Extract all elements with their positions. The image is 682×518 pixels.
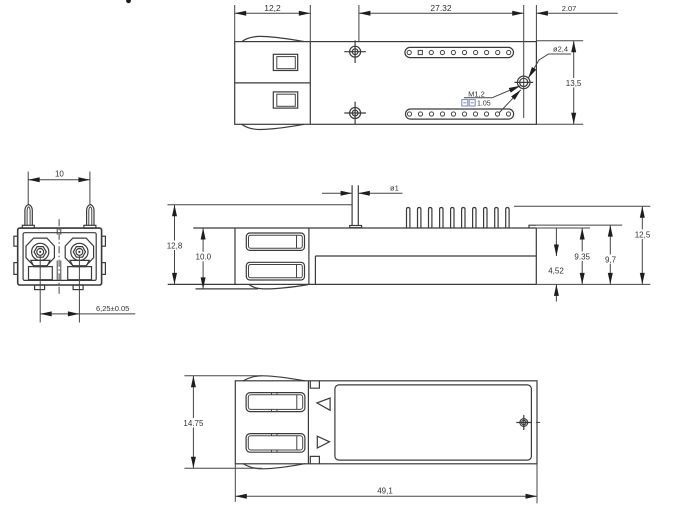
svg-text:ø1: ø1 <box>390 183 399 192</box>
svg-text:2.07: 2.07 <box>562 4 577 13</box>
svg-text:10: 10 <box>55 170 64 179</box>
svg-text:12,5: 12,5 <box>635 230 651 239</box>
svg-text:49,1: 49,1 <box>377 487 393 496</box>
svg-text:M1,2: M1,2 <box>468 89 485 98</box>
svg-text:13,5: 13,5 <box>566 79 582 88</box>
svg-text:27.32: 27.32 <box>430 3 452 13</box>
svg-text:10.0: 10.0 <box>196 253 212 262</box>
svg-text:1.05: 1.05 <box>477 101 491 108</box>
svg-text:14.75: 14.75 <box>183 419 204 428</box>
svg-text:12,2: 12,2 <box>264 3 281 13</box>
svg-text:6,25±0.05: 6,25±0.05 <box>96 304 129 313</box>
svg-text:ø2,4: ø2,4 <box>553 45 568 54</box>
svg-text:12,8: 12,8 <box>167 241 183 250</box>
svg-text:9,7: 9,7 <box>605 255 617 264</box>
svg-text:9.35: 9.35 <box>574 252 590 261</box>
svg-text:4,52: 4,52 <box>548 266 564 275</box>
